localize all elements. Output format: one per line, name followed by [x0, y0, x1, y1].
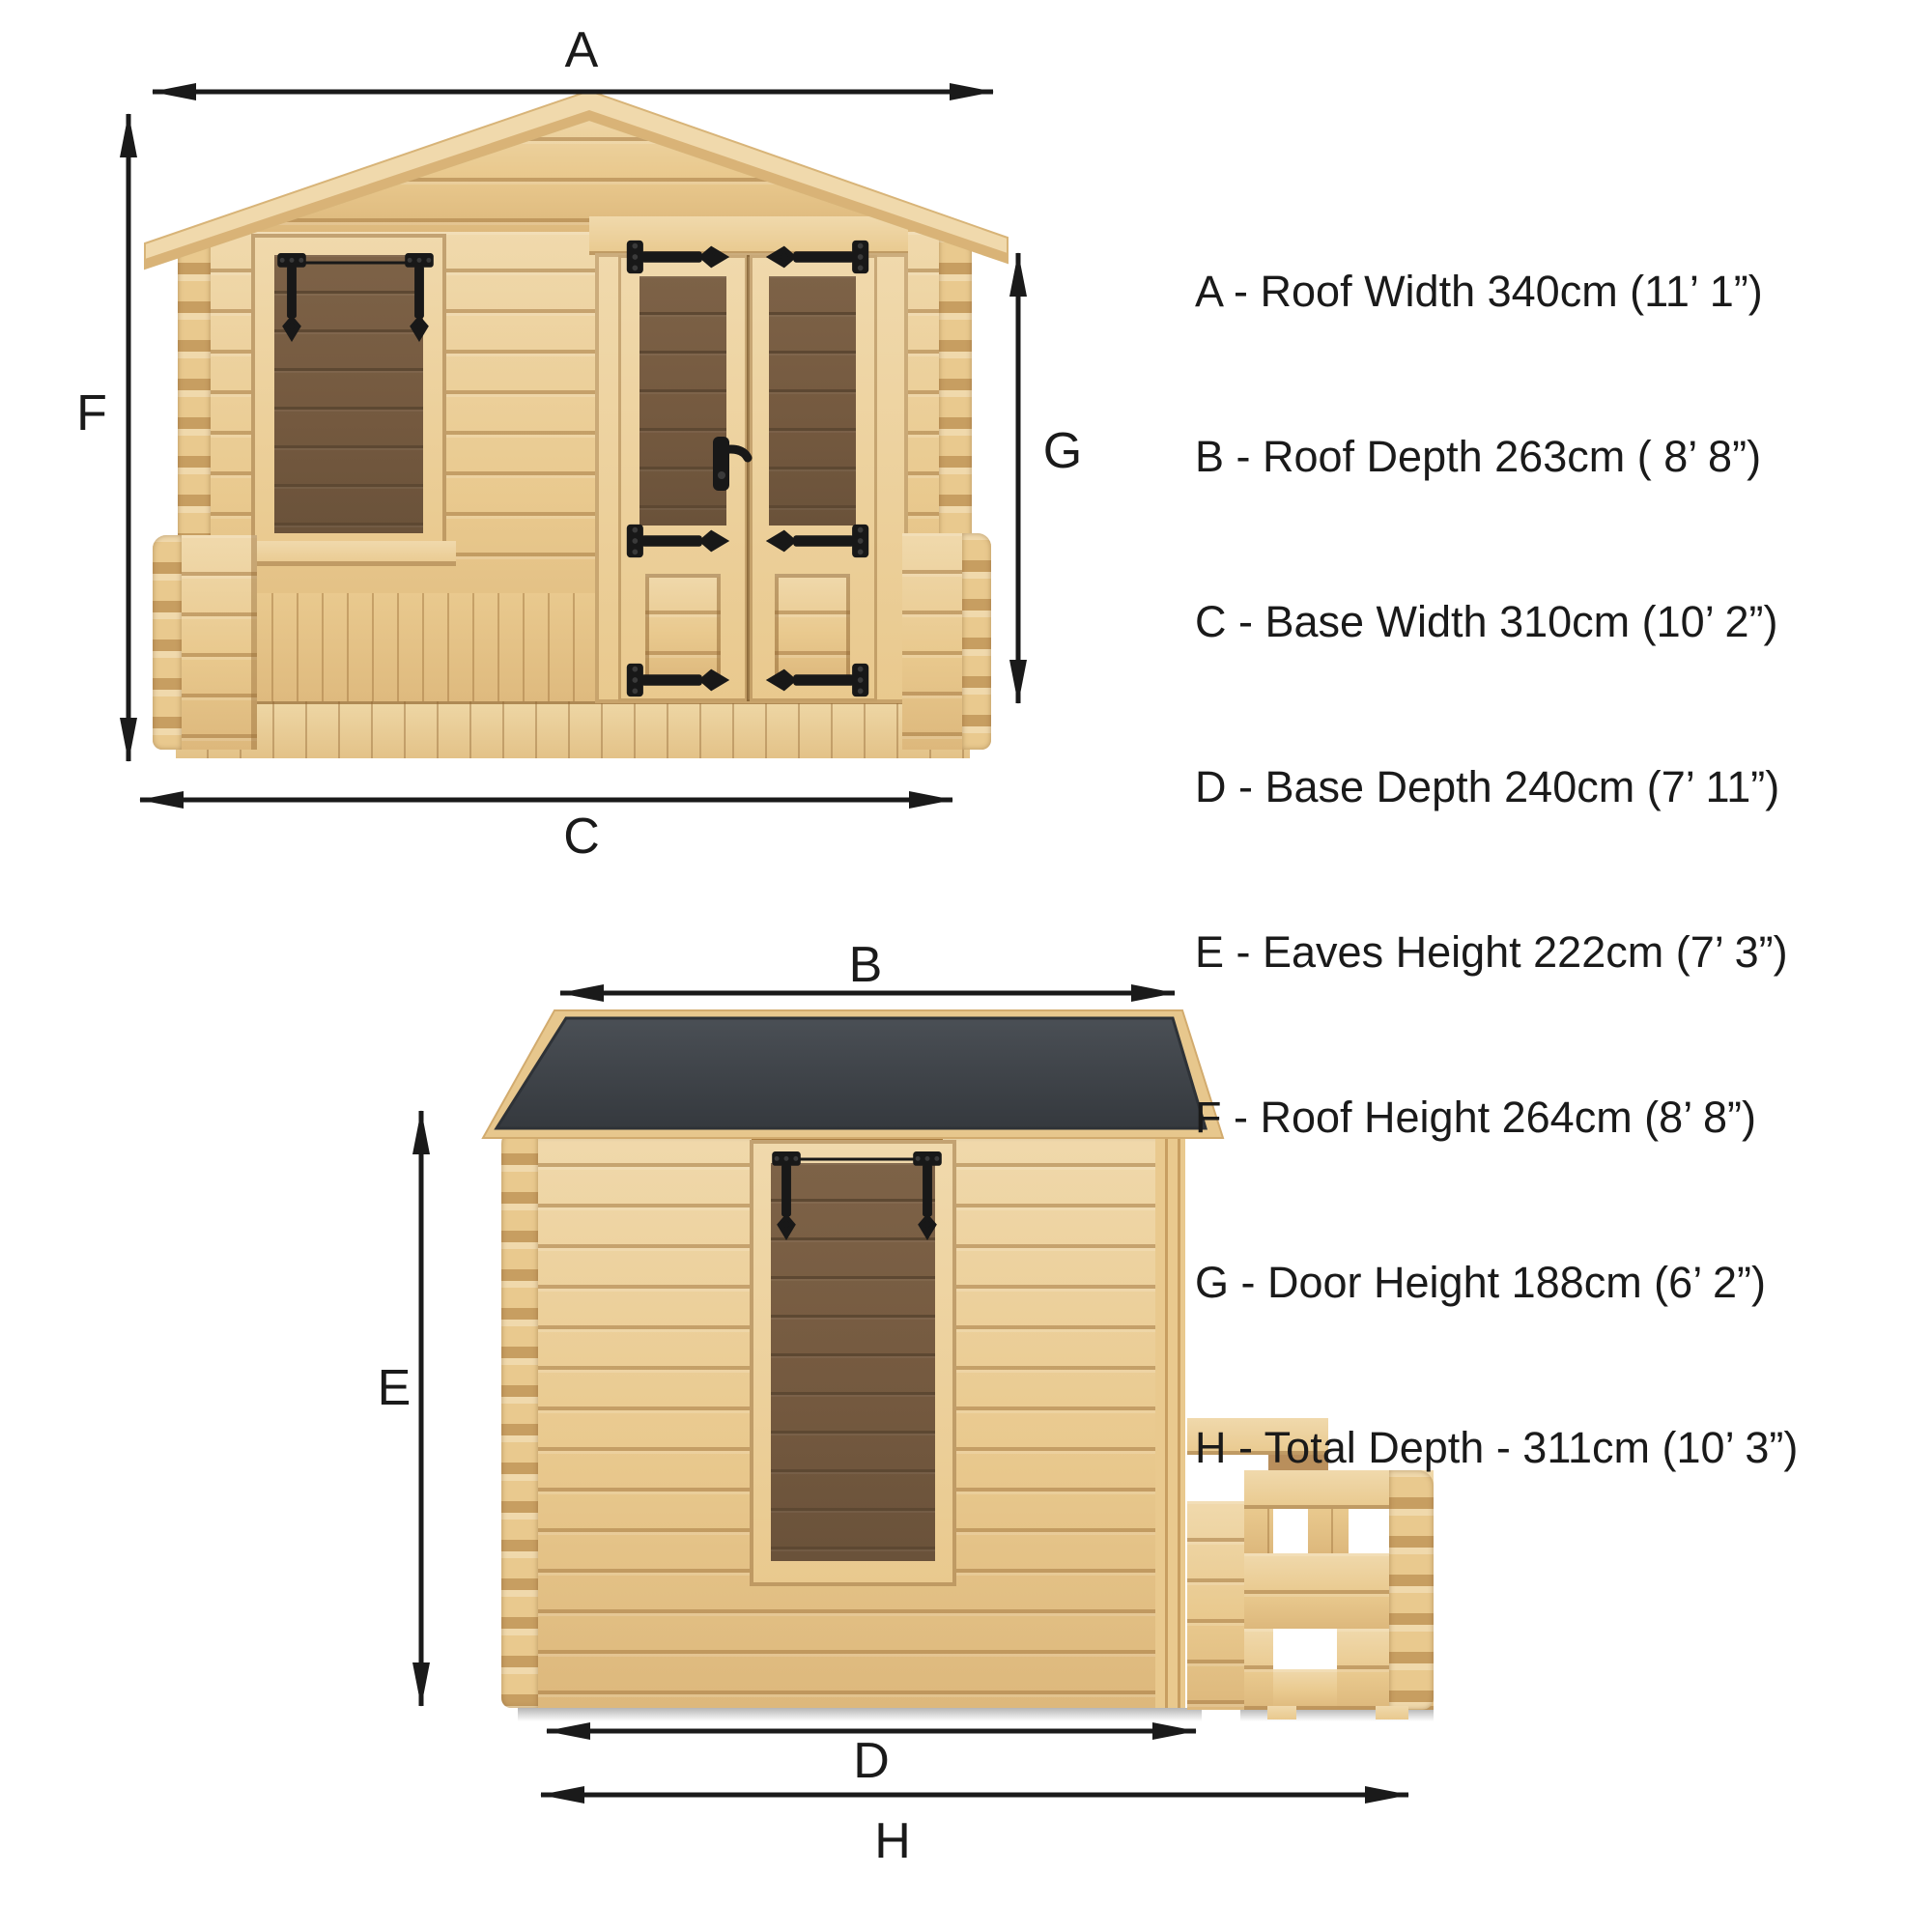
side-window-glass: [771, 1163, 935, 1561]
front-deck-floor: [176, 701, 970, 758]
front-door-right-panel: [775, 574, 850, 682]
legend-line-A: A - Roof Width 340cm (11’ 1”): [1195, 264, 1798, 319]
dim-label-B: B: [849, 940, 883, 990]
side-base-shadow: [518, 1708, 1202, 1721]
legend-line-E: E - Eaves Height 222cm (7’ 3”): [1195, 924, 1798, 980]
dim-label-D: D: [853, 1736, 890, 1786]
dim-label-A: A: [565, 25, 599, 75]
front-door-meeting-gap: [747, 255, 750, 701]
dim-label-C: C: [563, 811, 600, 862]
dim-label-H: H: [874, 1816, 911, 1866]
side-roof-fascia: [483, 1010, 1223, 1138]
legend-line-H: H - Total Depth - 311cm (10’ 3”): [1195, 1420, 1798, 1475]
dimension-legend: A - Roof Width 340cm (11’ 1”) B - Roof D…: [1195, 154, 1798, 1585]
front-gable: [185, 100, 974, 234]
veranda-foot-2: [1376, 1706, 1408, 1719]
front-door-left-panel: [645, 574, 721, 682]
side-roof-felt: [497, 1018, 1206, 1128]
legend-line-C: C - Base Width 310cm (10’ 2”): [1195, 594, 1798, 649]
dim-label-G: G: [1043, 426, 1082, 476]
front-door-left: [618, 255, 748, 701]
front-door-left-glass: [639, 276, 726, 526]
front-door-right-glass: [769, 276, 856, 526]
veranda-foot-1: [1267, 1706, 1296, 1719]
front-left-veranda-log-ends: [153, 535, 182, 750]
dim-label-F: F: [76, 388, 107, 439]
front-door-right: [750, 255, 877, 701]
dim-label-E: E: [378, 1363, 412, 1413]
side-right-corner-trim: [1155, 1126, 1185, 1708]
veranda-front-bottom-band: [1244, 1629, 1273, 1710]
front-window-sill: [240, 541, 456, 566]
legend-line-D: D - Base Depth 240cm (7’ 11”): [1195, 759, 1798, 814]
dimension-diagram: A F G C B E D H A - Roof Width 340cm (11…: [0, 0, 1932, 1932]
side-left-corner-logs: [501, 1126, 538, 1708]
veranda-front-bottom-band-3: [1273, 1669, 1337, 1710]
legend-line-G: G - Door Height 188cm (6’ 2”): [1195, 1255, 1798, 1310]
front-door-header: [589, 216, 908, 255]
legend-line-F: F - Roof Height 264cm (8’ 8”): [1195, 1090, 1798, 1145]
veranda-front-gap-row-2: [1273, 1629, 1337, 1669]
front-window-glass: [274, 255, 423, 533]
front-right-veranda-log-ends: [962, 533, 991, 750]
legend-line-B: B - Roof Depth 263cm ( 8’ 8”): [1195, 429, 1798, 484]
